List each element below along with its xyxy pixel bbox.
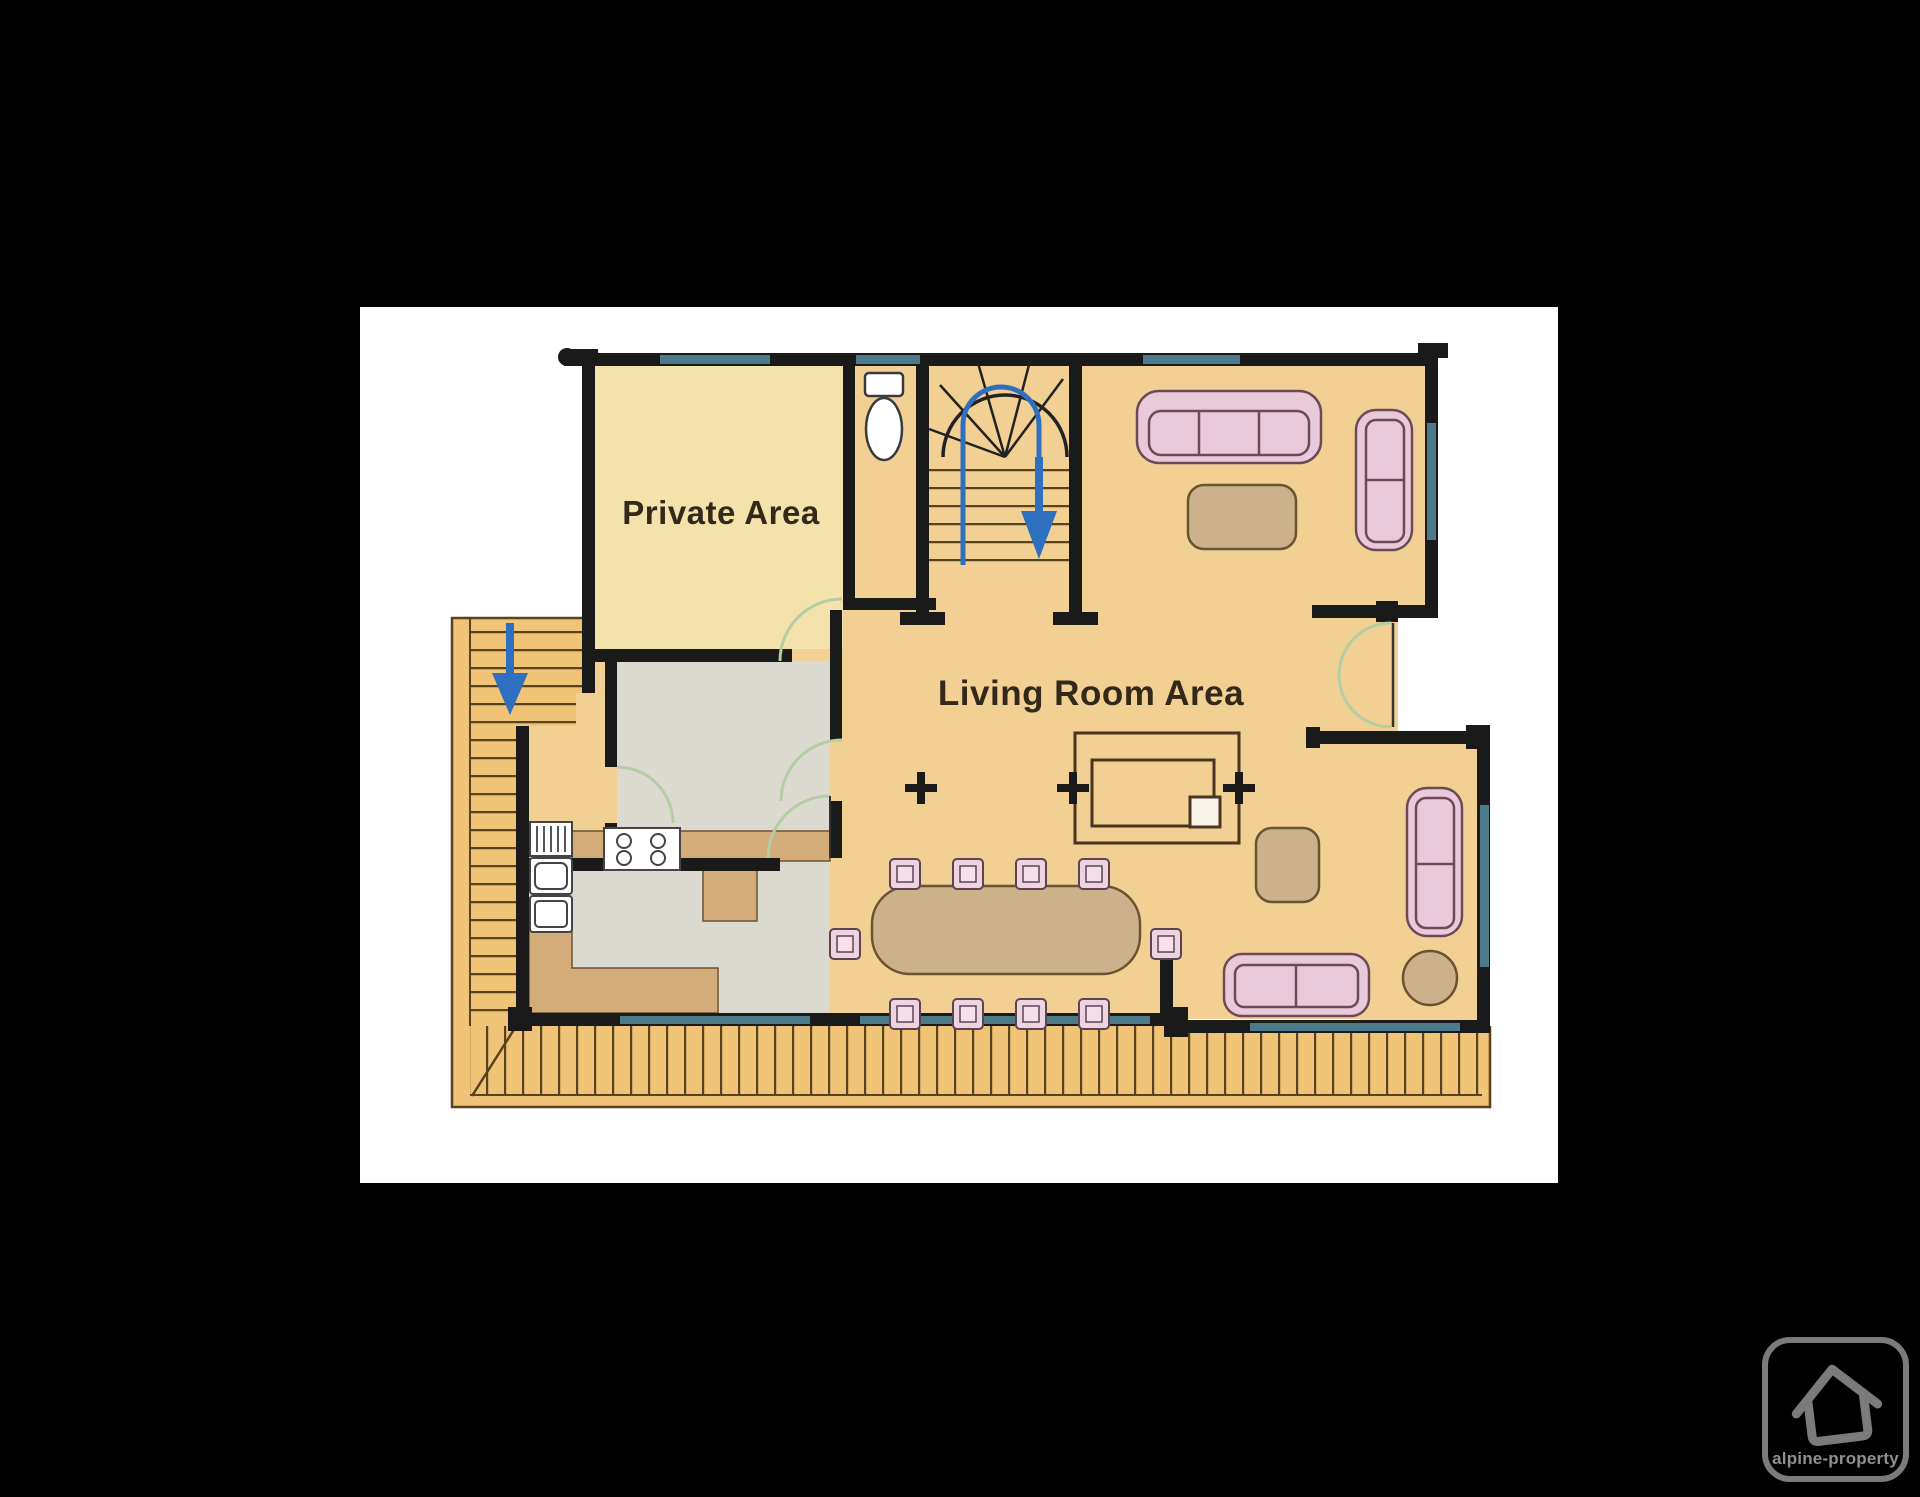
sofa-bottom <box>1224 954 1369 1016</box>
room-label-private-area: Private Area <box>622 494 819 532</box>
black-background: Private Area Living Room Area alpine-pro… <box>0 0 1920 1497</box>
floorplan-panel: Private Area Living Room Area <box>360 307 1558 1183</box>
side-table <box>1256 828 1319 902</box>
stove-icon <box>604 828 680 870</box>
floor-plan <box>360 307 1558 1183</box>
brand-logo: alpine-property <box>1762 1337 1909 1482</box>
sofa-top <box>1137 391 1321 463</box>
coffee-table <box>1188 485 1296 549</box>
sofa-right-lower <box>1407 788 1462 936</box>
room-label-living-room: Living Room Area <box>938 674 1244 714</box>
house-logo-icon <box>1780 1351 1892 1447</box>
exterior-stairs <box>470 618 582 726</box>
sofa-right-upper <box>1356 410 1412 550</box>
kitchen-appliances <box>530 822 572 932</box>
toilet-icon <box>865 373 903 460</box>
dining-table <box>872 886 1140 974</box>
round-table <box>1403 951 1457 1005</box>
brand-logo-text: alpine-property <box>1768 1449 1903 1469</box>
